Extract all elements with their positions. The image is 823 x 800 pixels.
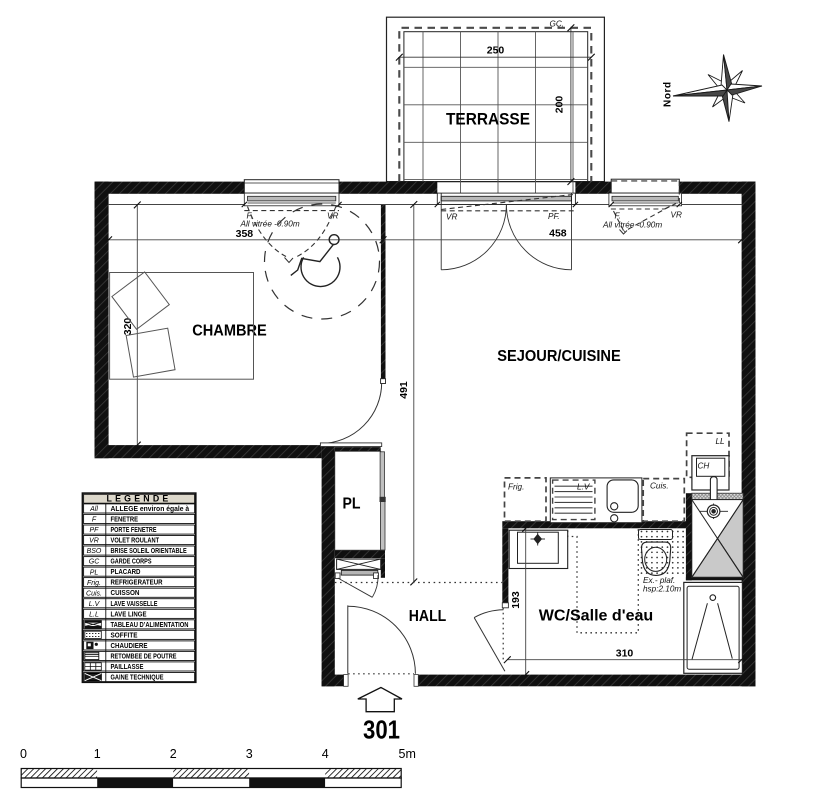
svg-text:PAILLASSE: PAILLASSE <box>111 664 144 671</box>
svg-text:Frig.: Frig. <box>87 580 101 587</box>
svg-text:All vitrée -0.90m: All vitrée -0.90m <box>602 221 662 230</box>
svg-text:LEGENDE: LEGENDE <box>107 493 172 503</box>
svg-text:hsp:2.10m: hsp:2.10m <box>643 585 681 594</box>
svg-text:458: 458 <box>549 228 567 240</box>
svg-text:CHAUDIERE: CHAUDIERE <box>111 643 148 650</box>
svg-text:358: 358 <box>236 228 254 240</box>
svg-text:310: 310 <box>616 648 634 660</box>
svg-text:VOLET ROULANT: VOLET ROULANT <box>111 538 160 545</box>
svg-text:PLACARD: PLACARD <box>111 569 141 576</box>
svg-text:GARDE CORPS: GARDE CORPS <box>111 559 152 566</box>
svg-text:BRISE SOLEIL ORIENTABLE: BRISE SOLEIL ORIENTABLE <box>111 548 187 555</box>
svg-text:320: 320 <box>122 318 134 336</box>
svg-text:LL: LL <box>716 437 725 446</box>
svg-text:HALL: HALL <box>409 608 447 625</box>
svg-text:VR: VR <box>446 213 457 222</box>
svg-text:VR: VR <box>327 212 338 221</box>
svg-text:VR: VR <box>671 211 682 220</box>
svg-text:TABLEAU D’ALIMENTATION: TABLEAU D’ALIMENTATION <box>111 622 189 629</box>
svg-text:3: 3 <box>246 747 253 761</box>
svg-text:GAINE TECHNIQUE: GAINE TECHNIQUE <box>111 675 164 682</box>
svg-text:L.V: L.V <box>89 601 101 608</box>
svg-text:PL: PL <box>90 569 99 576</box>
svg-text:301: 301 <box>363 715 400 745</box>
svg-text:2: 2 <box>170 747 177 761</box>
svg-text:PL: PL <box>343 496 361 513</box>
svg-text:PF.: PF. <box>548 212 560 221</box>
svg-text:F: F <box>92 517 97 524</box>
svg-text:All: All <box>89 506 98 513</box>
svg-text:Cuis.: Cuis. <box>650 482 669 491</box>
svg-text:GC: GC <box>89 559 100 566</box>
svg-text:VR: VR <box>89 538 99 545</box>
svg-text:Frig.: Frig. <box>508 483 524 492</box>
svg-text:CHAMBRE: CHAMBRE <box>192 323 267 340</box>
svg-text:SEJOUR/CUISINE: SEJOUR/CUISINE <box>497 348 621 365</box>
svg-text:Nord: Nord <box>663 81 674 107</box>
svg-text:WC/Salle d'eau: WC/Salle d'eau <box>539 608 654 625</box>
svg-text:BSO: BSO <box>87 548 102 555</box>
svg-text:5m: 5m <box>399 747 416 761</box>
svg-text:F.: F. <box>615 212 621 221</box>
svg-text:FENETRE: FENETRE <box>111 517 139 524</box>
svg-text:250: 250 <box>487 45 505 57</box>
svg-text:TERRASSE: TERRASSE <box>446 110 530 129</box>
svg-text:Cuis.: Cuis. <box>86 590 102 597</box>
svg-text:L.L: L.L <box>89 611 99 618</box>
svg-text:LAVE VAISSELLE: LAVE VAISSELLE <box>111 601 158 608</box>
svg-text:CH: CH <box>698 462 710 471</box>
svg-text:L.V: L.V <box>577 483 591 492</box>
svg-text:CUISSON: CUISSON <box>111 590 140 597</box>
svg-text:GC.: GC. <box>550 20 565 29</box>
svg-text:0: 0 <box>20 747 27 761</box>
svg-text:193: 193 <box>510 591 522 609</box>
svg-text:200: 200 <box>554 96 566 114</box>
svg-text:491: 491 <box>398 381 410 399</box>
svg-text:4: 4 <box>322 747 329 761</box>
svg-text:PF: PF <box>90 527 100 534</box>
svg-text:PORTE FENETRE: PORTE FENETRE <box>111 527 157 534</box>
svg-text:LAVE LINGE: LAVE LINGE <box>111 611 147 618</box>
svg-text:ALLEGE environ égale à: ALLEGE environ égale à <box>111 506 190 513</box>
svg-text:1: 1 <box>94 747 101 761</box>
svg-text:SOFFITE: SOFFITE <box>111 632 138 639</box>
svg-text:REFRIGERATEUR: REFRIGERATEUR <box>111 580 163 587</box>
svg-text:RETOMBEE DE POUTRE: RETOMBEE DE POUTRE <box>111 654 177 661</box>
